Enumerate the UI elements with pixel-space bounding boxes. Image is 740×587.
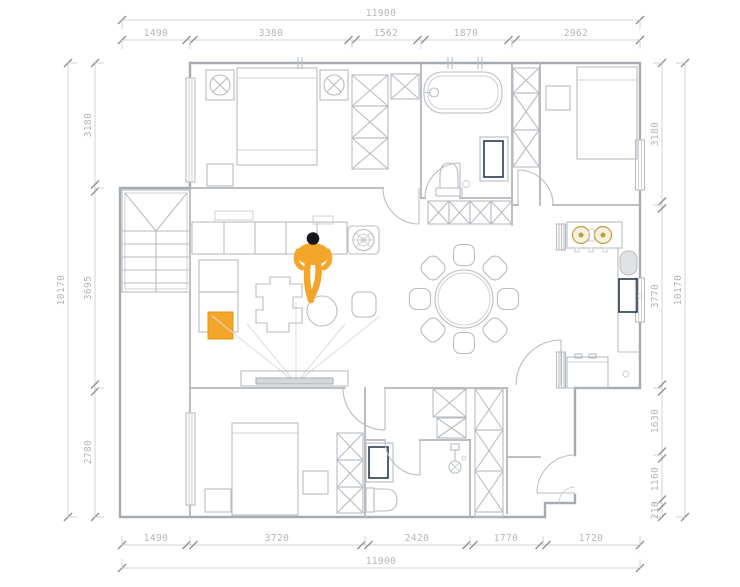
basin-icon <box>620 251 637 275</box>
door-arc <box>343 388 385 430</box>
dimension-right: 3180 3770 1630 1160 210 10170 <box>650 59 689 521</box>
bathtub-icon <box>424 72 502 113</box>
door-arc <box>385 440 420 475</box>
wardrobe-icon <box>513 68 539 167</box>
nightstand-icon <box>546 86 570 110</box>
chair-icon <box>410 289 431 310</box>
step-arc <box>559 487 575 503</box>
dining-table-icon <box>435 270 493 328</box>
orange-chair-icon <box>208 312 233 339</box>
dim-right-seg-3: 1160 <box>650 467 661 491</box>
dim-right-seg-0: 3180 <box>650 122 661 146</box>
floor-plan: 11900 1490 3380 1562 1870 2962 1490 <box>0 0 740 587</box>
dim-right-seg-1: 3770 <box>650 284 661 308</box>
sofa-icon <box>256 277 302 332</box>
toilet-icon <box>366 488 397 512</box>
floor-plan-canvas: 11900 1490 3380 1562 1870 2962 1490 <box>0 0 740 587</box>
wall-hatch-icon <box>557 224 566 250</box>
dim-right-seg-2: 1630 <box>650 409 661 433</box>
dim-right-total: 10170 <box>673 275 684 306</box>
hallway-storage <box>428 201 512 224</box>
dim-left-total: 10170 <box>56 275 67 306</box>
bathroom-top <box>424 72 508 198</box>
wardrobe-icon <box>352 74 419 169</box>
dim-bottom-seg-3: 1770 <box>494 533 518 544</box>
dim-top-total: 11900 <box>366 8 397 19</box>
dim-bottom-seg-2: 2420 <box>405 533 429 544</box>
door-arc <box>383 188 419 224</box>
dimension-left: 10170 3180 3695 2780 <box>56 59 104 521</box>
entry <box>537 455 575 503</box>
dining-area <box>410 245 519 354</box>
tv-icon <box>241 371 348 386</box>
bedroom-bottom-left <box>205 423 363 515</box>
dresser-icon <box>207 164 233 186</box>
bed-icon <box>577 67 637 159</box>
chair-icon <box>454 333 475 354</box>
dimension-bottom: 1490 3720 2420 1770 1720 11900 <box>118 533 644 572</box>
fridge-icon <box>567 354 629 388</box>
shower-icon <box>449 444 466 473</box>
chair-icon <box>454 245 475 266</box>
bed-icon <box>237 68 317 165</box>
window-icon <box>186 78 195 182</box>
dim-top-seg-2: 1562 <box>374 28 398 39</box>
person-head <box>307 232 320 245</box>
nightstand-icon <box>205 489 231 512</box>
bedroom-top-left <box>206 68 419 224</box>
dim-bottom-seg-0: 1490 <box>144 533 168 544</box>
door-arc <box>425 163 460 198</box>
staircase <box>122 190 190 292</box>
living-area <box>192 211 385 430</box>
dim-left-seg-0: 3180 <box>83 113 94 137</box>
door-arc <box>516 340 561 385</box>
chair-icon <box>498 289 519 310</box>
wardrobe-icon <box>475 389 503 517</box>
dim-top-seg-1: 3380 <box>259 28 283 39</box>
ottoman-icon <box>352 292 376 317</box>
dim-top-seg-4: 2962 <box>564 28 588 39</box>
entry-door-arc <box>537 455 575 493</box>
storage-closets <box>433 389 503 517</box>
dim-right-seg-4: 210 <box>650 501 661 519</box>
cooktop-icon <box>348 226 379 254</box>
dim-top-seg-3: 1870 <box>454 28 478 39</box>
window-icon <box>186 413 195 505</box>
person-figure-icon <box>296 232 330 300</box>
bed-icon <box>232 423 298 515</box>
wardrobe-icon <box>337 433 363 513</box>
kitchen <box>516 222 642 388</box>
stove-icon <box>567 222 622 252</box>
dim-left-seg-1: 3695 <box>83 276 94 300</box>
dim-left-seg-2: 2780 <box>83 440 94 464</box>
dim-top-seg-0: 1490 <box>144 28 168 39</box>
bedroom-top-right <box>513 67 637 205</box>
dim-bottom-total: 11900 <box>366 556 397 567</box>
nightstand-icon <box>303 471 328 494</box>
door-arc <box>518 170 553 205</box>
sink-icon <box>480 137 508 181</box>
dim-bottom-seg-1: 3720 <box>265 533 289 544</box>
bathroom-bottom <box>366 440 466 512</box>
faucet-icon <box>430 88 439 97</box>
sink-icon <box>366 443 393 482</box>
dimension-top: 11900 1490 3380 1562 1870 2962 <box>118 8 644 49</box>
dim-bottom-seg-4: 1720 <box>579 533 603 544</box>
